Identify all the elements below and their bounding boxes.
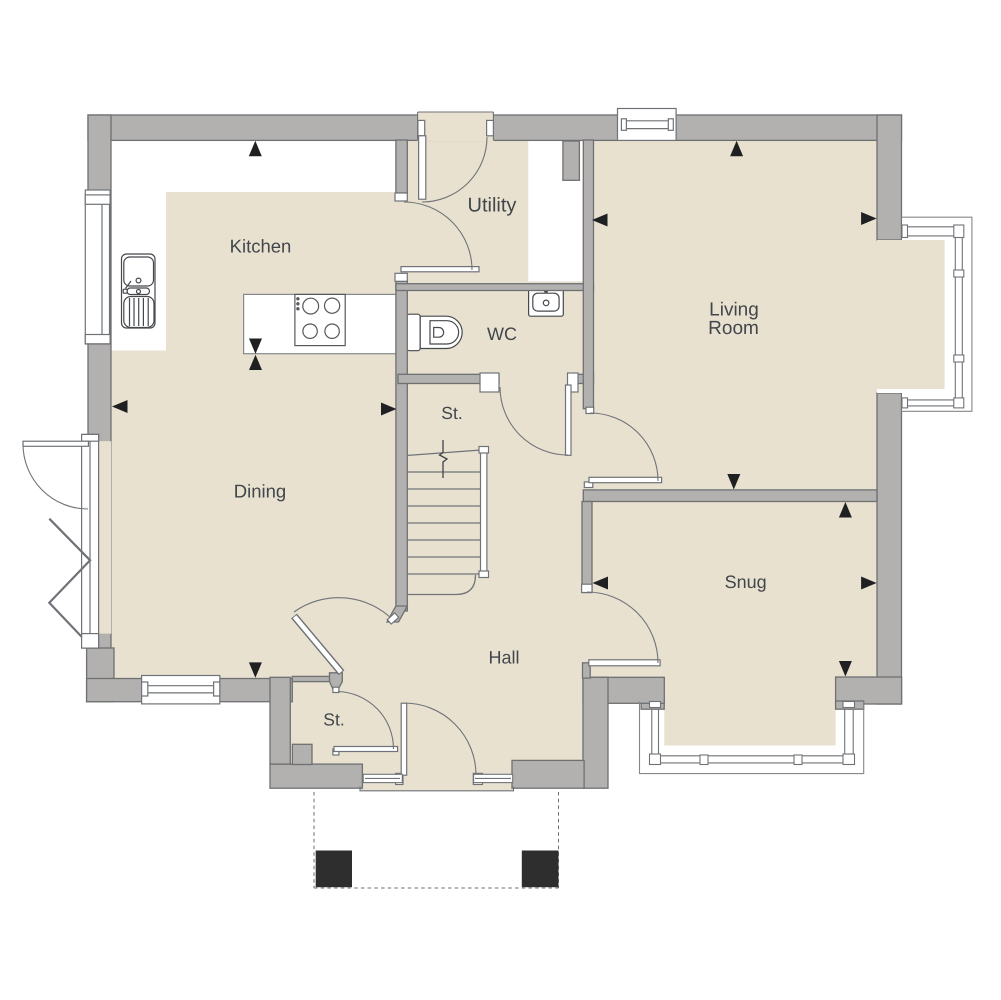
svg-text:Room: Room xyxy=(708,318,759,339)
svg-text:WC: WC xyxy=(487,324,517,344)
svg-text:Utility: Utility xyxy=(468,195,517,217)
svg-text:St.: St. xyxy=(441,403,462,423)
svg-text:Hall: Hall xyxy=(488,648,519,668)
svg-text:Snug: Snug xyxy=(725,572,767,592)
svg-text:St.: St. xyxy=(323,710,344,730)
svg-text:Dining: Dining xyxy=(234,481,286,502)
svg-text:Kitchen: Kitchen xyxy=(230,236,292,257)
